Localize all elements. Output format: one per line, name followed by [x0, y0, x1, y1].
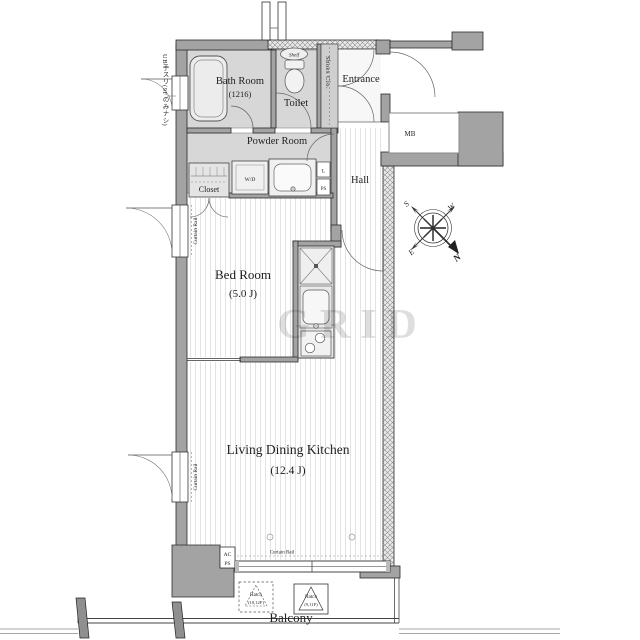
washbasin: [269, 159, 316, 196]
compass-label-e: E: [406, 247, 416, 258]
bath-room-label: Bath Room: [216, 76, 264, 87]
compass-rose: [411, 206, 459, 254]
meter-box: [389, 113, 459, 153]
entrance-label: Entrance: [342, 74, 380, 85]
balcony-sliding-window: [235, 561, 390, 572]
bathtub: [190, 56, 227, 121]
washer-dryer-label: W/D: [245, 177, 256, 183]
window-bedroom: [126, 205, 192, 257]
balcony-label: Balcony: [269, 610, 313, 625]
wall-right-shared: [383, 166, 394, 566]
hatch-left-title: Hatch: [250, 593, 262, 598]
compass-label-w: W: [446, 201, 458, 213]
wall-top-right: [390, 41, 452, 48]
ac-ps-label: PS: [224, 561, 230, 567]
meter-box-label: MB: [405, 130, 416, 138]
hall-label: Hall: [351, 175, 369, 186]
balcony-structure: [0, 578, 560, 638]
floor-plan-drawing: GRID Bath Room (1216) Toilet Shelf Entra…: [0, 0, 640, 640]
wall-top-bath: [176, 40, 272, 50]
ldk-label: Living Dining Kitchen: [227, 442, 350, 457]
wall-mb-block: [458, 112, 503, 166]
wall-powder-top-a: [187, 128, 231, 133]
pipe-space-label: PS: [321, 187, 327, 192]
compass-label-s: S: [402, 199, 411, 208]
hatch-left-floors: (10,12F): [248, 600, 264, 606]
fridge-space: [300, 248, 332, 284]
wall-bedroom-ldk: [240, 357, 298, 362]
wall-corner-entrance: [376, 40, 390, 54]
wall-powder-top-b: [253, 128, 275, 133]
balcony-partition: [76, 598, 89, 638]
curtain-rail-label-bedroom: Curtain Rail: [193, 206, 199, 256]
wall-powder-hall: [331, 128, 337, 232]
bedroom-label: Bed Room: [215, 267, 271, 282]
wall-toilet-shoes: [317, 44, 321, 128]
ldk-size: (12.4 J): [270, 465, 305, 477]
shoes-closet-label: Shoes Clo.: [324, 56, 331, 120]
entrance-floor: [338, 50, 381, 122]
closet-label: Closet: [199, 185, 220, 194]
side-note-label: UB手スリ(9Fのみナシ): [159, 54, 169, 172]
curtain-rail-label-balcony: Curtain Rail: [270, 551, 295, 556]
window-ldk: [128, 452, 192, 502]
bath-room-size: (1216): [229, 89, 252, 99]
ac-label: AC: [224, 552, 232, 558]
balcony-partition: [172, 602, 185, 638]
roof-duct: [262, 2, 286, 40]
watermark: GRID: [277, 302, 427, 348]
compass-label-n: N: [451, 252, 464, 265]
shelf-label: Shelf: [289, 54, 300, 59]
entrance-door-arc: [390, 52, 435, 97]
toilet-label: Toilet: [284, 98, 308, 109]
bedroom-size: (5.0 J): [229, 288, 257, 300]
hatch-right-title: Hatch: [305, 595, 317, 600]
powder-room-label: Powder Room: [247, 136, 307, 147]
wall-block-top-right: [452, 32, 483, 50]
bedroom-sliding-door: [187, 359, 241, 361]
wall-bath-toilet: [271, 50, 276, 128]
floor-plan: GRID Bath Room (1216) Toilet Shelf Entra…: [0, 0, 640, 640]
curtain-rail-label-ldk: Curtain Rail: [193, 453, 199, 501]
